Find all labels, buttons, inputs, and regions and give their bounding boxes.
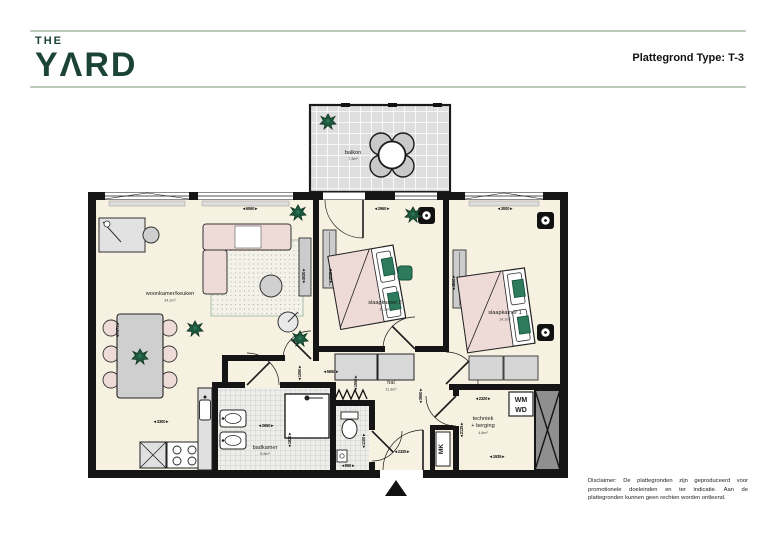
dimension-label: ◄1935► [489,454,505,459]
room-label-hal: hal [387,380,394,386]
toilet-sink [337,450,347,462]
room-area-slaapkamer1: 14,1m² [499,318,511,322]
railing-bracket [388,103,397,107]
balcony: balkon 7,3m² [310,103,450,192]
window [395,193,437,200]
room-label-woonkamer: woonkamer/keuken [145,291,195,297]
dresser [504,356,538,380]
sofa-chaise [203,250,227,294]
entrance-opening [380,470,423,478]
tv-cabinet [299,238,311,296]
dimension-label: ◄4840► [451,275,456,291]
dimension-label: ◄2320► [475,396,491,401]
header-rule-top [30,30,746,32]
dimension-label: ◄1050► [297,365,302,381]
shaft [535,390,560,470]
floor-plan-svg: balkon 7,3m² [85,100,575,498]
mk-label: MK [438,444,445,454]
room-area-hal: 11,3m² [385,388,397,392]
sofa-area [203,224,303,332]
dimension-label: ◄5650► [323,369,339,374]
disclaimer-text: Disclaimer: De plattegronden zijn geprod… [588,477,748,503]
dimension-label: ◄950► [341,463,355,468]
brand-logo: THE YΛRD [35,36,137,82]
entrance-arrow [385,480,407,496]
washer-label: WM [515,397,528,404]
room-label-slaapkamer1: slaapkamer 1 [488,310,522,316]
window [465,193,543,200]
sofa-cushion [235,226,261,248]
dimension-label: ◄6060► [242,206,258,211]
dresser [469,356,503,380]
railing-bracket [433,103,442,107]
dimension-label: ◄2650► [258,423,274,428]
window [105,193,189,200]
dimension-label: ◄3300► [153,419,169,424]
dimension-label: ◄4020► [328,268,333,284]
dimension-label: ◄1820► [287,432,292,448]
windows [105,193,543,200]
room-label-balkon: balkon [345,150,361,156]
desk-chair [143,227,159,243]
railing-bracket [341,103,350,107]
hall-cabinet [378,354,414,380]
dryer-label: WD [515,407,527,414]
bed-slaapkamer2 [328,245,406,329]
room-area-techniek: 4,6m² [478,431,488,435]
room-label-badkamer: badkamer [253,445,278,451]
window [198,193,293,200]
room-area-woonkamer: 34,1m² [164,299,176,303]
meter-cupboard: MK [436,432,450,466]
balcony-door-opening [323,193,365,200]
nightstand-lamp [537,212,554,229]
header-rule-bottom [30,86,746,88]
coffee-table [260,275,282,297]
floor-plan: balkon 7,3m² [85,100,575,498]
dimension-label: ◄2125► [459,422,464,438]
dimension-label: ◄1100► [361,433,366,449]
dimension-label: ◄3550► [418,388,423,404]
washer-dryer-box: WM WD [509,392,533,416]
dimension-label: ◄3000► [497,206,513,211]
room-label-slaapkamer2: slaapkamer 2 [368,300,402,306]
dimension-label: ◄4020► [301,268,306,284]
room-label-techniek-1: techniek [473,416,494,422]
toilet-bowl [342,420,357,439]
room-area-slaapkamer2: 11,2m² [379,308,391,312]
dimension-label: ◄2960► [374,206,390,211]
room-area-badkamer: 5,6m² [260,452,270,456]
logo-yard: YΛRD [35,48,137,82]
radiator [109,201,185,206]
dimension-label: ◄2325► [394,449,410,454]
nightstand-lamp [537,324,554,341]
dimension-label: ◄7071► [115,322,120,338]
page: THE YΛRD Plattegrond Type: T-3 [0,0,768,538]
room-label-techniek-2: + berging [471,423,494,429]
kitchen-sink [200,400,211,420]
shower [285,394,329,438]
plan-type-label: Plattegrond Type: T-3 [632,52,744,64]
armchair [398,266,412,280]
speaker-box [418,207,435,224]
dimension-label: ◄1550► [353,375,358,391]
room-area-balkon: 7,3m² [348,157,358,161]
